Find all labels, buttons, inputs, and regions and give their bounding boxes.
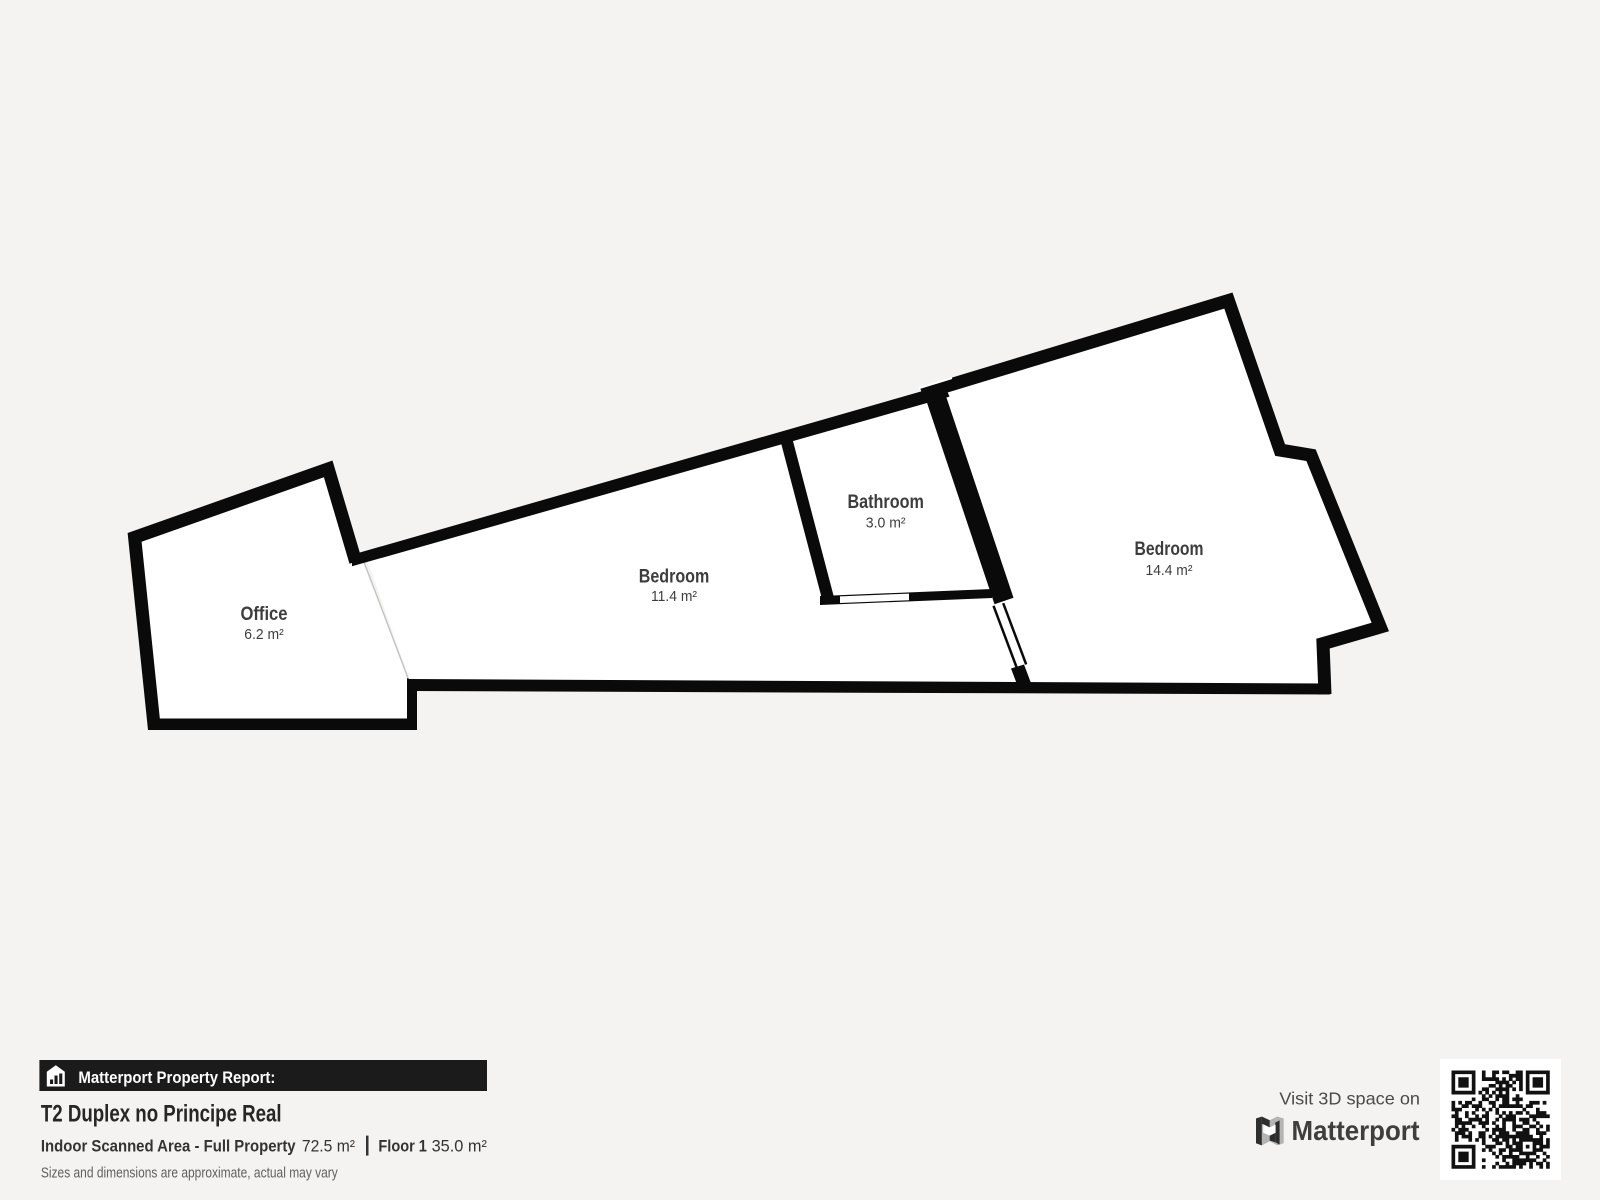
svg-text:Office: Office	[241, 603, 288, 625]
svg-text:Matterport Property Report:: Matterport Property Report:	[78, 1068, 275, 1087]
svg-text:3.0 m²: 3.0 m²	[866, 515, 906, 531]
svg-text:Bedroom: Bedroom	[639, 566, 710, 588]
svg-text:6.2 m²: 6.2 m²	[244, 627, 284, 643]
svg-text:Visit 3D space on: Visit 3D space on	[1279, 1089, 1420, 1109]
svg-text:Bedroom: Bedroom	[1135, 538, 1204, 560]
svg-text:35.0 m²: 35.0 m²	[432, 1137, 488, 1155]
svg-text:Matterport: Matterport	[1292, 1115, 1420, 1146]
svg-text:11.4 m²: 11.4 m²	[651, 589, 697, 605]
svg-text:Indoor Scanned Area - Full Pro: Indoor Scanned Area - Full Property	[41, 1137, 296, 1155]
svg-text:14.4 m²: 14.4 m²	[1146, 563, 1193, 579]
svg-text:T2 Duplex no Principe Real: T2 Duplex no Principe Real	[41, 1100, 282, 1127]
svg-text:Floor 1: Floor 1	[378, 1137, 427, 1155]
svg-text:72.5 m²: 72.5 m²	[302, 1137, 356, 1155]
svg-text:Sizes and dimensions are appro: Sizes and dimensions are approximate, ac…	[41, 1166, 339, 1182]
svg-text:Bathroom: Bathroom	[847, 491, 924, 513]
